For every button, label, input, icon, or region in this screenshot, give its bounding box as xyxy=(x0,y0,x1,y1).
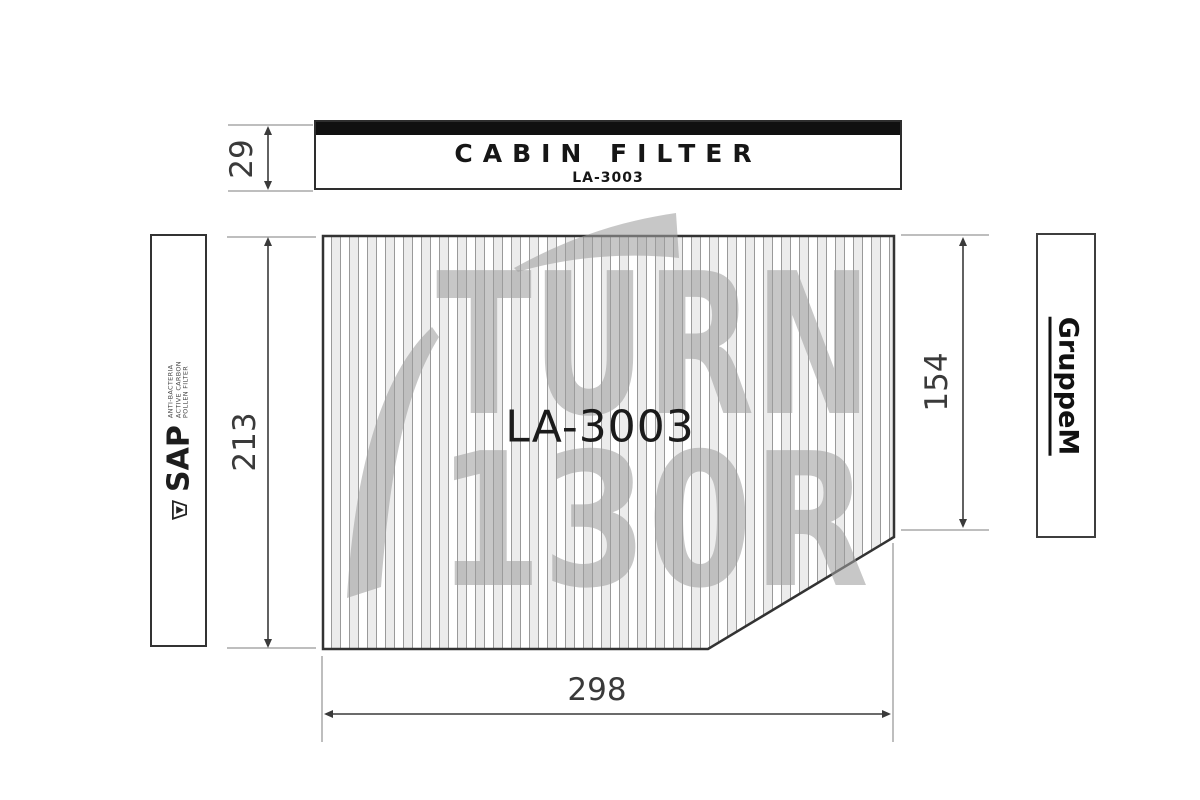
filter-printed-code: LA-3003 xyxy=(505,402,695,453)
watermark: TURN 130R xyxy=(0,0,1200,800)
diagram-canvas: 29 213 154 298 CABIN FILTER LA-3003 SAP … xyxy=(0,0,1200,800)
watermark-swoosh-blade xyxy=(347,327,439,598)
